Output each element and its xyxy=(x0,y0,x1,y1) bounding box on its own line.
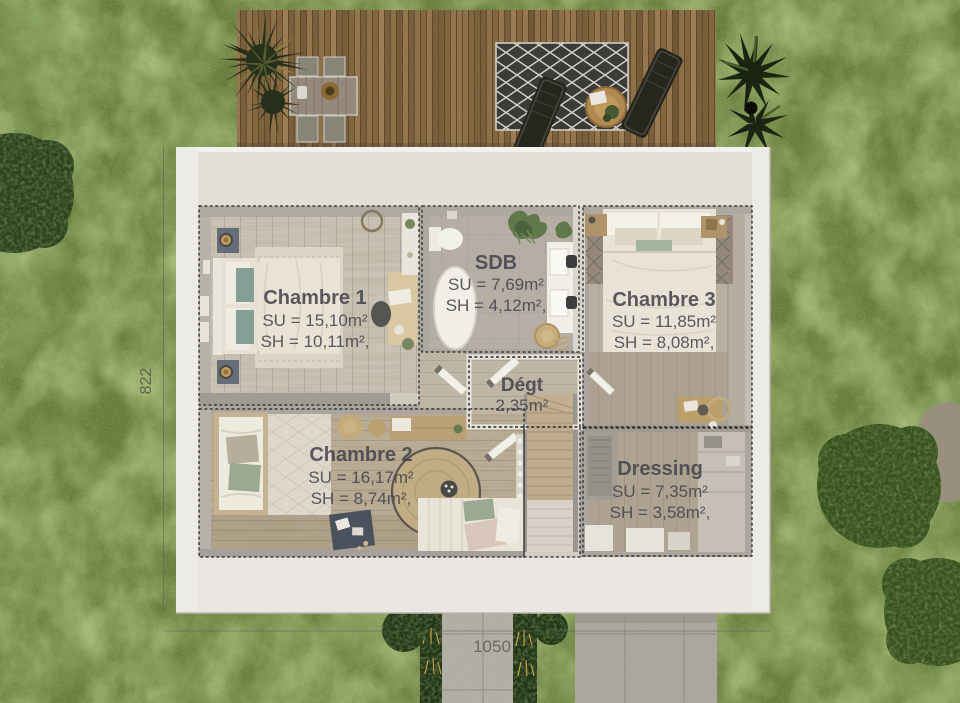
svg-text:1050: 1050 xyxy=(473,637,511,656)
svg-text:SH = 8,08m²,: SH = 8,08m², xyxy=(614,333,715,352)
svg-text:SH = 10,11m²,: SH = 10,11m², xyxy=(261,332,370,351)
svg-text:SU = 7,35m²: SU = 7,35m² xyxy=(612,482,708,501)
svg-text:Dégt: Dégt xyxy=(501,375,544,396)
svg-text:SH = 8,74m²,: SH = 8,74m², xyxy=(311,489,412,508)
svg-text:Chambre 2: Chambre 2 xyxy=(309,444,412,466)
svg-text:2,35m²: 2,35m² xyxy=(496,396,549,415)
svg-text:SU = 15,10m²: SU = 15,10m² xyxy=(262,311,368,330)
svg-text:SDB: SDB xyxy=(475,252,517,274)
svg-text:822: 822 xyxy=(138,368,155,395)
svg-text:Chambre 1: Chambre 1 xyxy=(263,287,366,309)
svg-text:Dressing: Dressing xyxy=(617,458,703,480)
svg-text:SH = 4,12m²,: SH = 4,12m², xyxy=(446,296,547,315)
svg-text:SU = 11,85m²: SU = 11,85m² xyxy=(612,312,716,331)
svg-text:SH = 3,58m²,: SH = 3,58m², xyxy=(610,503,711,522)
svg-text:Chambre 3: Chambre 3 xyxy=(612,289,715,311)
svg-text:SU = 7,69m²: SU = 7,69m² xyxy=(448,275,544,294)
svg-text:SU = 16,17m²: SU = 16,17m² xyxy=(308,468,414,487)
